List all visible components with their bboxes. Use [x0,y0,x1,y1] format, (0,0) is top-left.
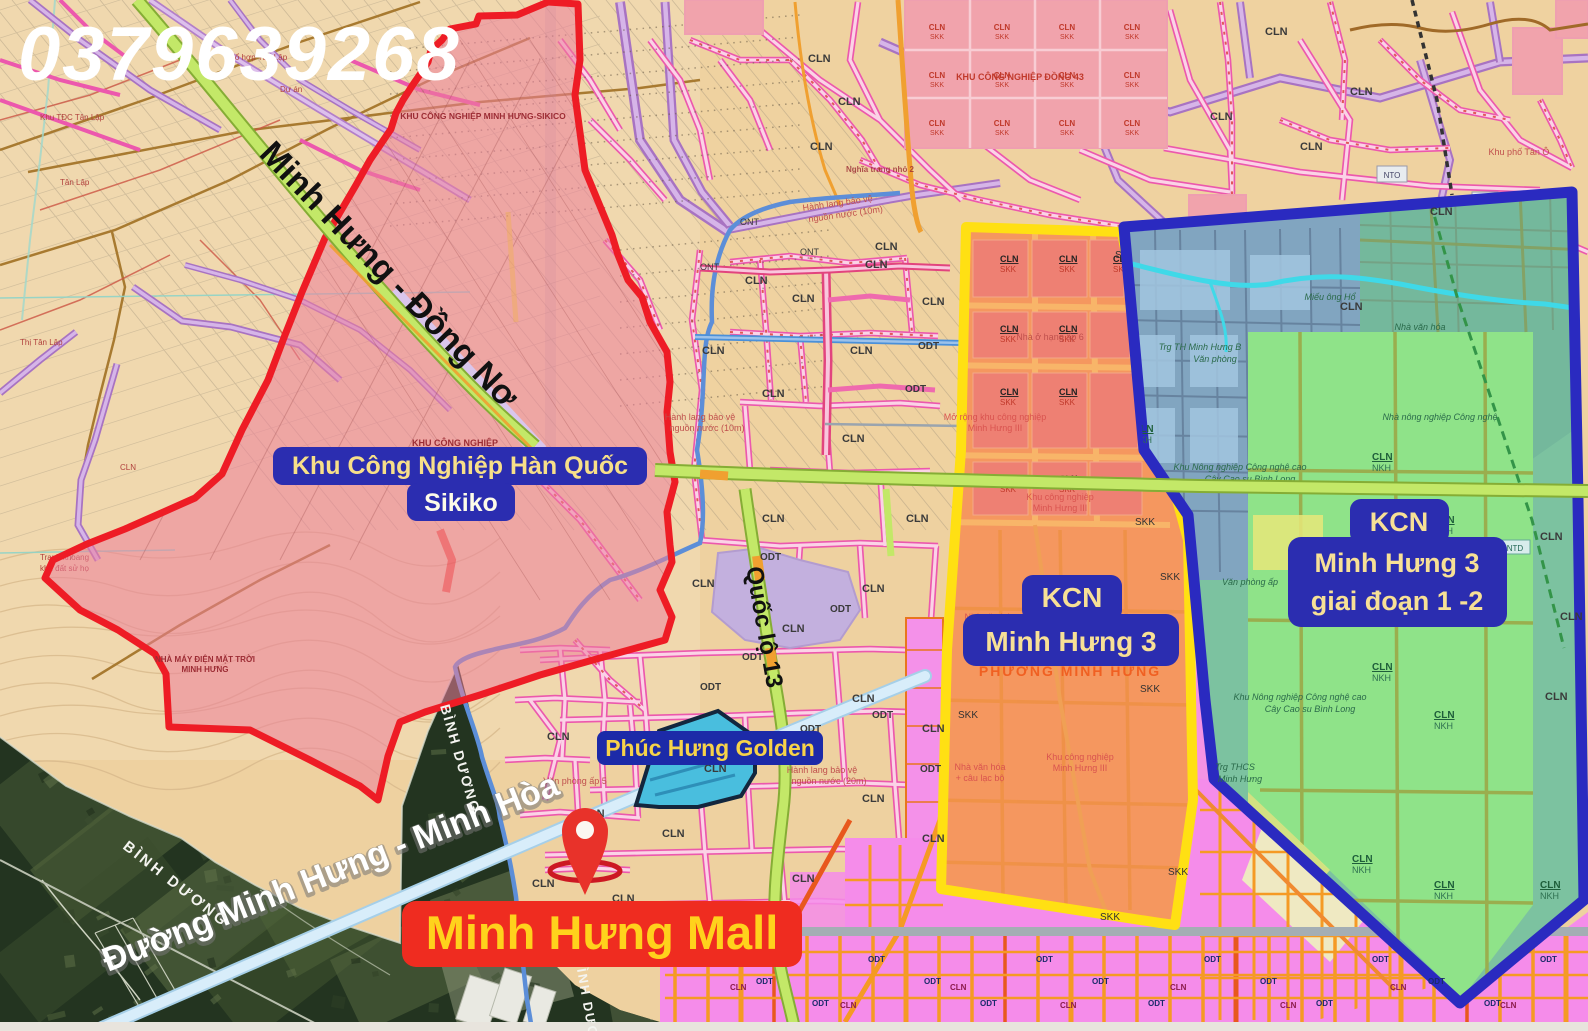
svg-text:ODT: ODT [920,764,941,775]
svg-text:Minh Hưng III: Minh Hưng III [1033,503,1088,513]
svg-text:SKK: SKK [1168,867,1188,878]
svg-text:CLN: CLN [547,731,570,743]
svg-text:SKK: SKK [1125,34,1139,41]
svg-text:Minh Hưng III: Minh Hưng III [968,423,1023,433]
svg-text:CLN: CLN [1170,983,1187,992]
svg-text:CLN: CLN [810,141,833,153]
svg-text:NKH: NKH [1372,463,1391,473]
svg-text:Khu Nông nghiệp Công nghệ cao: Khu Nông nghiệp Công nghệ cao [1233,692,1366,702]
svg-text:Minh Hưng: Minh Hưng [1218,774,1262,784]
svg-text:CLN: CLN [850,345,873,357]
svg-text:ODT: ODT [868,955,885,964]
svg-text:CLN: CLN [929,119,946,128]
svg-text:NKH: NKH [1352,865,1371,875]
svg-text:CLN: CLN [1434,710,1455,721]
svg-text:SKK: SKK [1059,265,1076,274]
svg-text:CLN: CLN [1210,111,1233,123]
svg-text:CLN: CLN [1280,1001,1297,1010]
svg-text:ODT: ODT [1148,999,1165,1008]
svg-text:CLN: CLN [745,275,768,287]
svg-text:SKK: SKK [1000,398,1017,407]
svg-text:KHU CÔNG NGHIỆP ĐỒNG 43: KHU CÔNG NGHIỆP ĐỒNG 43 [956,71,1084,82]
svg-text:Thị Tân Lập: Thị Tân Lập [20,338,63,347]
svg-text:SKK: SKK [1125,82,1139,89]
svg-text:CLN: CLN [929,71,946,80]
svg-text:Phúc Hưng Golden: Phúc Hưng Golden [605,735,815,761]
svg-text:Nhà văn hóa: Nhà văn hóa [954,762,1005,772]
svg-text:CLN: CLN [1540,880,1561,891]
svg-text:ODT: ODT [1316,999,1333,1008]
svg-text:NKH: NKH [1372,673,1391,683]
svg-text:CLN: CLN [1059,387,1078,397]
svg-text:SKK: SKK [995,34,1009,41]
svg-text:CLN: CLN [1265,26,1288,38]
svg-text:CLN: CLN [1060,1001,1077,1010]
svg-text:ODT: ODT [1204,955,1221,964]
svg-text:CLN: CLN [1124,119,1141,128]
svg-text:Cây Cao su Bình Long: Cây Cao su Bình Long [1265,704,1356,714]
svg-text:CLN: CLN [1124,71,1141,80]
svg-text:CLN: CLN [1390,983,1407,992]
svg-text:Hành lang bảo vệ: Hành lang bảo vệ [787,765,858,775]
svg-text:ODT: ODT [812,999,829,1008]
svg-text:giai đoạn 1 -2: giai đoạn 1 -2 [1311,586,1484,616]
svg-text:SKK: SKK [995,82,1009,89]
svg-text:CLN: CLN [1434,880,1455,891]
svg-text:Mở rộng khu công nghiệp: Mở rộng khu công nghiệp [944,412,1046,422]
svg-text:ODT: ODT [760,552,781,563]
svg-text:ODT: ODT [700,682,721,693]
svg-text:SKK: SKK [1135,517,1155,528]
svg-text:NTO: NTO [1384,171,1401,180]
svg-text:Trg THCS: Trg THCS [1215,762,1255,772]
svg-text:Hành lang bảo vệ: Hành lang bảo vệ [665,412,736,422]
svg-text:SKK: SKK [1000,335,1017,344]
svg-text:NKH: NKH [1434,721,1453,731]
svg-text:Khu TĐC Tân Lập: Khu TĐC Tân Lập [40,113,105,122]
svg-text:Khu Công Nghiệp Hàn Quốc: Khu Công Nghiệp Hàn Quốc [292,452,628,480]
svg-text:CLN: CLN [762,388,785,400]
svg-text:ODT: ODT [924,977,941,986]
svg-text:SKK: SKK [1125,130,1139,137]
svg-text:NKH: NKH [1434,891,1453,901]
svg-text:SKK: SKK [958,710,978,721]
svg-text:SKK: SKK [995,130,1009,137]
svg-text:nguồn nước (20m): nguồn nước (20m) [792,776,867,786]
svg-text:Minh Hưng III: Minh Hưng III [1053,763,1108,773]
svg-text:CLN: CLN [1372,452,1393,463]
svg-text:Nhà ở hạng ấp 6: Nhà ở hạng ấp 6 [1016,332,1083,342]
svg-text:Minh Hưng Mall: Minh Hưng Mall [426,906,779,959]
svg-text:CLN: CLN [840,1001,857,1010]
svg-text:CLN: CLN [929,23,946,32]
svg-text:CLN: CLN [662,828,685,840]
svg-text:Nhà văn hóa: Nhà văn hóa [1394,322,1445,332]
svg-text:ODT: ODT [1484,999,1501,1008]
svg-text:CLN: CLN [1430,206,1453,218]
svg-text:MINH HƯNG: MINH HƯNG [181,665,228,674]
svg-text:+ câu lạc bộ: + câu lạc bộ [956,773,1005,783]
svg-text:CLN: CLN [1059,119,1076,128]
svg-text:CLN: CLN [792,873,815,885]
svg-text:Nhà nông nghiệp Công nghệ: Nhà nông nghiệp Công nghệ [1382,412,1497,422]
svg-text:CLN: CLN [1340,301,1363,313]
svg-text:CLN: CLN [1000,254,1019,264]
svg-text:SKK: SKK [1060,34,1074,41]
svg-text:SKK: SKK [1060,82,1074,89]
svg-text:SKK: SKK [930,34,944,41]
svg-text:CLN: CLN [1300,141,1323,153]
svg-text:CLN: CLN [702,345,725,357]
svg-text:SKK: SKK [1160,572,1180,583]
svg-text:Minh Hưng 3: Minh Hưng 3 [985,626,1156,657]
svg-text:CLN: CLN [906,513,929,525]
svg-text:CLN: CLN [532,878,555,890]
svg-text:CLN: CLN [842,433,865,445]
svg-text:ODT: ODT [918,341,939,352]
svg-text:Khu Nông nghiệp Công nghệ cao: Khu Nông nghiệp Công nghệ cao [1173,462,1306,472]
svg-text:ONT: ONT [700,262,720,272]
svg-text:SKK: SKK [930,82,944,89]
svg-text:CLN: CLN [782,623,805,635]
svg-text:CLN: CLN [1350,86,1373,98]
svg-text:CLN: CLN [120,463,136,472]
svg-text:SKK: SKK [1059,398,1076,407]
svg-text:Khu phố Tân Ô: Khu phố Tân Ô [1489,147,1550,157]
svg-text:KCN: KCN [1042,582,1103,613]
svg-text:Văn phòng: Văn phòng [1193,354,1237,364]
svg-text:CLN: CLN [792,293,815,305]
svg-text:ODT: ODT [980,999,997,1008]
svg-text:ODT: ODT [1036,955,1053,964]
svg-text:KCN: KCN [1370,507,1429,537]
svg-text:CLN: CLN [762,513,785,525]
svg-text:CLN: CLN [1000,387,1019,397]
svg-text:nguồn nước (10m): nguồn nước (10m) [670,423,745,433]
svg-text:CLN: CLN [862,583,885,595]
svg-text:SKK: SKK [1100,912,1120,923]
svg-text:SKK: SKK [1060,130,1074,137]
svg-text:ODT: ODT [1260,977,1277,986]
svg-text:CLN: CLN [994,23,1011,32]
svg-text:ODT: ODT [756,977,773,986]
svg-text:ODT: ODT [905,384,926,395]
svg-text:SKK: SKK [930,130,944,137]
svg-text:CLN: CLN [692,578,715,590]
svg-text:CLN: CLN [1540,531,1563,543]
svg-text:CLN: CLN [1124,23,1141,32]
svg-text:Tân Lập: Tân Lập [60,178,90,187]
svg-text:CLN: CLN [730,983,747,992]
svg-text:CLN: CLN [994,119,1011,128]
svg-text:NKH: NKH [1540,891,1559,901]
svg-text:ODT: ODT [1428,977,1445,986]
svg-text:ODT: ODT [1540,955,1557,964]
svg-text:KHU CÔNG NGHIỆP: KHU CÔNG NGHIỆP [412,437,498,448]
svg-text:Khu công nghiệp: Khu công nghiệp [1026,492,1094,502]
svg-text:CLN: CLN [1059,23,1076,32]
svg-text:CLN: CLN [862,793,885,805]
svg-text:Khu công nghiệp: Khu công nghiệp [1046,752,1114,762]
svg-text:Trg TH Minh Hưng B: Trg TH Minh Hưng B [1159,342,1242,352]
svg-text:NTD: NTD [1507,544,1524,553]
svg-text:CLN: CLN [922,833,945,845]
svg-text:Văn phòng ấp: Văn phòng ấp [1222,577,1278,587]
svg-text:Nghĩa trang nhỏ 2: Nghĩa trang nhỏ 2 [846,165,915,174]
svg-text:Sikiko: Sikiko [424,489,498,517]
svg-text:CLN: CLN [1560,611,1583,623]
svg-text:CLN: CLN [1500,1001,1517,1010]
svg-text:KHU CÔNG NGHIỆP MINH HƯNG-SIKI: KHU CÔNG NGHIỆP MINH HƯNG-SIKICO [400,110,566,121]
svg-text:CLN: CLN [922,296,945,308]
svg-text:CLN: CLN [950,983,967,992]
svg-text:ODT: ODT [1092,977,1109,986]
svg-text:ODT: ODT [1372,955,1389,964]
svg-text:ODT: ODT [830,604,851,615]
svg-text:CLN: CLN [808,53,831,65]
svg-text:ONT: ONT [740,217,760,227]
svg-text:CLN: CLN [865,259,888,271]
svg-text:SKK: SKK [1000,265,1017,274]
svg-text:CLN: CLN [852,693,875,705]
svg-text:CLN: CLN [1545,691,1568,703]
svg-text:NHÀ MÁY ĐIỆN MẶT TRỜI: NHÀ MÁY ĐIỆN MẶT TRỜI [155,655,255,664]
svg-text:0379639268: 0379639268 [18,12,461,97]
svg-text:CLN: CLN [875,241,898,253]
svg-text:ODT: ODT [872,710,893,721]
svg-text:ONT: ONT [800,247,820,257]
svg-text:CLN: CLN [922,723,945,735]
svg-text:SKK: SKK [1140,684,1160,695]
svg-text:CLN: CLN [1372,662,1393,673]
svg-text:Minh Hưng 3: Minh Hưng 3 [1314,548,1479,578]
svg-text:CLN: CLN [1059,254,1078,264]
svg-text:CLN: CLN [1352,854,1373,865]
svg-text:CLN: CLN [838,96,861,108]
